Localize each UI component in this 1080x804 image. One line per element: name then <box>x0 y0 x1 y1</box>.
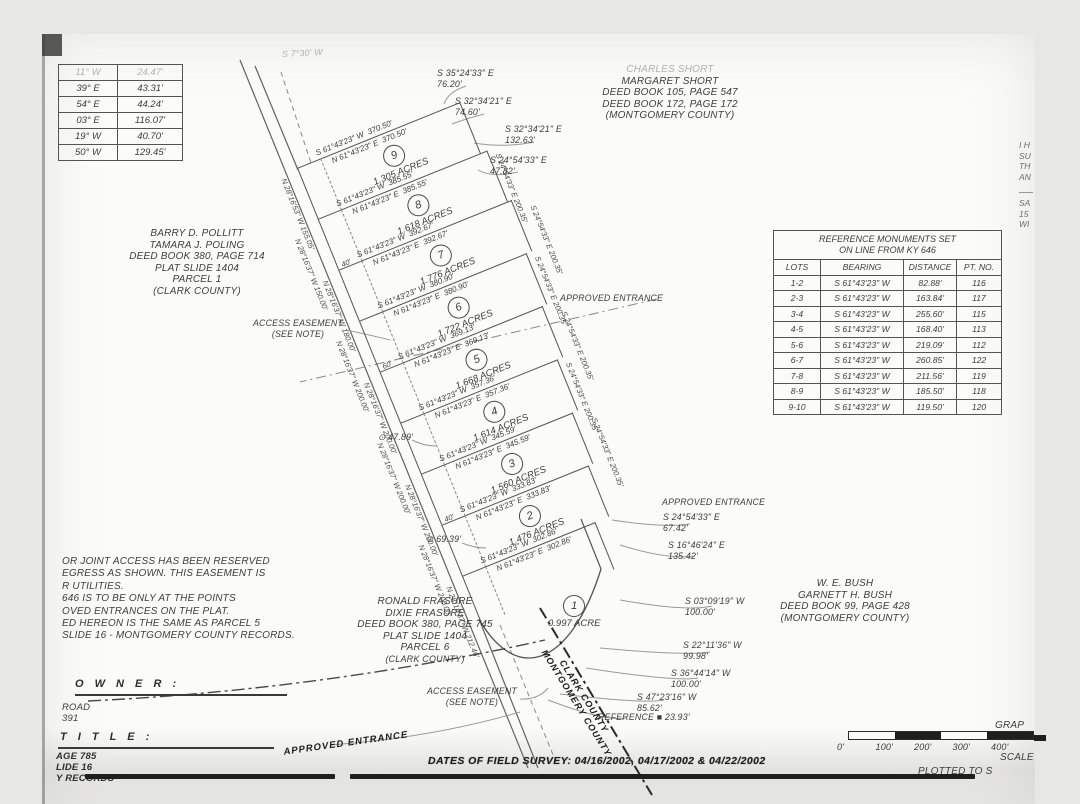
bearing-callout: S 32°34'21" E 74.60' <box>455 96 512 118</box>
title-bar-line <box>350 774 975 779</box>
table-cell: 8-9 <box>774 384 821 400</box>
lot-acreage: 0.997 ACRE <box>548 618 600 629</box>
table-title: REFERENCE MONUMENTS SETON LINE FROM KY 6… <box>774 231 1002 260</box>
table-cell: 255.60' <box>904 306 957 322</box>
table-cell: 03° E <box>59 113 118 129</box>
table-cell: 54° E <box>59 97 118 113</box>
note-line: R UTILITIES. <box>62 581 295 593</box>
bearing-callout: S 03°09'19" W 100.00' <box>685 596 744 618</box>
table-row: 39° E43.31' <box>59 81 183 97</box>
table-cell: 24.47' <box>118 65 183 81</box>
deed-reference: DEED BOOK 380, PAGE 714 <box>107 251 287 263</box>
table-cell: 185.50' <box>904 384 957 400</box>
scale-segment <box>987 732 1033 739</box>
owner-name: TAMARA J. POLING <box>107 240 287 252</box>
table-title-line: REFERENCE MONUMENTS SET <box>819 234 956 244</box>
title-bar-line <box>85 774 335 779</box>
column-header: PT. NO. <box>957 260 1002 276</box>
bearing-callout: S 32°34'21" E 132.63' <box>505 124 562 146</box>
owner-name: DIXIE FRASURE <box>335 608 515 620</box>
table-cell: 9-10 <box>774 399 821 415</box>
table-cell: 6-7 <box>774 353 821 369</box>
bearing-callout: S 35°24'33" E 76.20' <box>437 68 494 90</box>
county-note: (MONTGOMERY COUNTY) <box>755 613 935 625</box>
owner-heading: O W N E R : <box>75 678 180 690</box>
lot-number: 1 <box>563 595 585 617</box>
note-line: ED HEREON IS THE SAME AS PARCEL 5 <box>62 618 295 630</box>
table-cell: S 61°43'23" W <box>821 306 904 322</box>
table-cell: 116.07' <box>118 113 183 129</box>
graphic-scale-title: GRAP <box>995 720 1024 731</box>
table-row: 03° E116.07' <box>59 113 183 129</box>
note-line: EGRESS AS SHOWN. THIS EASEMENT IS <box>62 568 295 580</box>
table-cell: 219.09' <box>904 337 957 353</box>
owner-name: W. E. BUSH <box>755 578 935 590</box>
scanned-plat-page: { "corner_table": { "rows": [ ["11° W","… <box>0 0 1080 804</box>
table-cell: S 61°43'23" W <box>821 291 904 307</box>
field-survey-dates: DATES OF FIELD SURVEY: 04/16/2002, 04/17… <box>428 755 766 767</box>
approved-entrance-label: APPROVED ENTRANCE <box>662 497 765 508</box>
table-row: 11° W24.47' <box>59 65 183 81</box>
easement-notes: OR JOINT ACCESS HAS BEEN RESERVED EGRESS… <box>62 556 295 643</box>
title-underline <box>58 747 274 749</box>
table-cell: 4-5 <box>774 322 821 338</box>
approved-entrance-label: APPROVED ENTRANCE <box>560 293 663 304</box>
owner-name: MARGARET SHORT <box>560 76 780 88</box>
table-cell: 118 <box>957 384 1002 400</box>
access-easement-note: ACCESS EASEMENT (SEE NOTE) <box>424 686 520 708</box>
table-cell: 1-2 <box>774 275 821 291</box>
scale-tick: 400' <box>991 742 1038 752</box>
adjoiner-pollitt: BARRY D. POLLITT TAMARA J. POLING DEED B… <box>107 228 287 298</box>
reference-line: AGE 785 <box>56 751 114 762</box>
access-easement-note: ACCESS EASEMENT (SEE NOTE) <box>250 318 346 340</box>
adjoiner-frasure: RONALD FRASURE DIXIE FRASURE DEED BOOK 3… <box>335 596 515 666</box>
bearing-callout: S 47°23'16" W 85.62' <box>637 692 696 714</box>
table-cell: S 61°43'23" W <box>821 353 904 369</box>
monument-symbol-distance: ⊙ 69.39' <box>426 534 461 545</box>
table-cell: 260.85' <box>904 353 957 369</box>
reference-line: LIDE 16 <box>56 762 114 773</box>
reference-monuments-table: REFERENCE MONUMENTS SETON LINE FROM KY 6… <box>773 230 1002 415</box>
corner-bearing-table: 11° W24.47' 39° E43.31' 54° E44.24' 03° … <box>58 64 183 161</box>
table-cell: 7-8 <box>774 368 821 384</box>
table-cell: 39° E <box>59 81 118 97</box>
monument-symbol-distance: ⊙ 47.89' <box>378 432 413 443</box>
table-cell: 117 <box>957 291 1002 307</box>
reference-monument-note: REFERENCE ■ 23.93' <box>598 712 690 723</box>
table-title-line: ON LINE FROM KY 646 <box>839 245 936 255</box>
table-row: 7-8S 61°43'23" W211.56'119 <box>774 368 1002 384</box>
owner-name: CHARLES SHORT <box>560 64 780 76</box>
bearing-callout: S 22°11'36" W 99.98' <box>683 640 742 662</box>
table-cell: S 61°43'23" W <box>821 368 904 384</box>
table-cell: 119.50' <box>904 399 957 415</box>
scale-bar <box>848 731 1034 740</box>
column-header: LOTS <box>774 260 821 276</box>
note-line: OVED ENTRANCES ON THE PLAT. <box>62 606 295 618</box>
table-cell: 2-3 <box>774 291 821 307</box>
table-cell: 5-6 <box>774 337 821 353</box>
clipped-text-fragment: SA 15 WI <box>1019 198 1030 230</box>
bearing-callout: S 24°54'33" E 67.42' <box>663 512 720 534</box>
adjoiner-short: CHARLES SHORT MARGARET SHORT DEED BOOK 1… <box>560 64 780 122</box>
title-references: AGE 785 LIDE 16 Y RECORDS <box>56 751 114 784</box>
table-cell: 3-4 <box>774 306 821 322</box>
column-header: BEARING <box>821 260 904 276</box>
table-header-row: LOTS BEARING DISTANCE PT. NO. <box>774 260 1002 276</box>
table-cell: 211.56' <box>904 368 957 384</box>
scale-tick-labels: 0' 100' 200' 300' 400' <box>845 742 1038 752</box>
scale-word: SCALE <box>1000 752 1034 763</box>
table-cell: 168.40' <box>904 322 957 338</box>
parcel-reference: PARCEL 6 <box>335 642 515 654</box>
table-cell: 115 <box>957 306 1002 322</box>
deed-reference: DEED BOOK 105, PAGE 547 <box>560 87 780 99</box>
county-note: (MONTGOMERY COUNTY) <box>560 110 780 122</box>
table-cell: 44.24' <box>118 97 183 113</box>
table-row: 19° W40.70' <box>59 129 183 145</box>
table-cell: 113 <box>957 322 1002 338</box>
table-row: 6-7S 61°43'23" W260.85'122 <box>774 353 1002 369</box>
deed-reference: DEED BOOK 172, PAGE 172 <box>560 99 780 111</box>
scale-segment <box>895 732 941 739</box>
table-row: 54° E44.24' <box>59 97 183 113</box>
column-header: DISTANCE <box>904 260 957 276</box>
adjoiner-bush: W. E. BUSH GARNETT H. BUSH DEED BOOK 99,… <box>755 578 935 624</box>
table-row: 2-3S 61°43'23" W163.84'117 <box>774 291 1002 307</box>
note-line: SLIDE 16 - MONTGOMERY COUNTY RECORDS. <box>62 630 295 642</box>
table-cell: 129.45' <box>118 145 183 161</box>
table-row: 50° W129.45' <box>59 145 183 161</box>
table-row: 8-9S 61°43'23" W185.50'118 <box>774 384 1002 400</box>
bearing-callout: S 24°54'33" E 47.82' <box>490 155 547 177</box>
plat-reference: PLAT SLIDE 1404 <box>107 263 287 275</box>
table-row: REFERENCE MONUMENTS SETON LINE FROM KY 6… <box>774 231 1002 260</box>
table-row: 1-2S 61°43'23" W82.88'116 <box>774 275 1002 291</box>
table-cell: 50° W <box>59 145 118 161</box>
county-note: (CLARK COUNTY) <box>335 654 515 666</box>
address-line: ROAD <box>62 702 90 713</box>
plat-reference: PLAT SLIDE 1404 <box>335 631 515 643</box>
table-cell: S 61°43'23" W <box>821 322 904 338</box>
table-row: 4-5S 61°43'23" W168.40'113 <box>774 322 1002 338</box>
owner-address: ROAD 391 <box>62 702 90 724</box>
table-cell: 40.70' <box>118 129 183 145</box>
table-cell: 120 <box>957 399 1002 415</box>
table-cell: 19° W <box>59 129 118 145</box>
table-cell: 119 <box>957 368 1002 384</box>
scale-segment <box>849 732 895 739</box>
table-cell: 116 <box>957 275 1002 291</box>
scale-bar-tail <box>1034 735 1046 741</box>
fragment-divider <box>1019 192 1033 193</box>
scale-segment <box>941 732 987 739</box>
deed-reference: DEED BOOK 380, PAGE 745 <box>335 619 515 631</box>
owner-name: GARNETT H. BUSH <box>755 590 935 602</box>
bearing-callout: S 36°44'14" W 100.00' <box>671 668 730 690</box>
bearing-callout: S 16°46'24" E 135.42' <box>668 540 725 562</box>
owner-name: RONALD FRASURE <box>335 596 515 608</box>
deed-reference: DEED BOOK 99, PAGE 428 <box>755 601 935 613</box>
owner-name: BARRY D. POLLITT <box>107 228 287 240</box>
table-cell: S 61°43'23" W <box>821 337 904 353</box>
table-cell: 82.88' <box>904 275 957 291</box>
table-cell: 163.84' <box>904 291 957 307</box>
owner-underline <box>75 694 287 696</box>
note-line: 646 IS TO BE ONLY AT THE POINTS <box>62 593 295 605</box>
table-row: 3-4S 61°43'23" W255.60'115 <box>774 306 1002 322</box>
county-note: (CLARK COUNTY) <box>107 286 287 298</box>
faint-top-bearing: S 7°30' W <box>282 47 323 60</box>
table-cell: S 61°43'23" W <box>821 384 904 400</box>
table-cell: 122 <box>957 353 1002 369</box>
table-cell: 11° W <box>59 65 118 81</box>
table-cell: S 61°43'23" W <box>821 399 904 415</box>
table-row: 5-6S 61°43'23" W219.09'112 <box>774 337 1002 353</box>
table-cell: S 61°43'23" W <box>821 275 904 291</box>
clipped-text-fragment: I H SU TH AN <box>1019 140 1031 182</box>
table-row: 9-10S 61°43'23" W119.50'120 <box>774 399 1002 415</box>
title-heading: T I T L E : <box>60 731 153 743</box>
table-cell: 43.31' <box>118 81 183 97</box>
table-cell: 112 <box>957 337 1002 353</box>
note-line: OR JOINT ACCESS HAS BEEN RESERVED <box>62 556 295 568</box>
lot-1-label: 1 0.997 ACRE <box>548 595 600 629</box>
parcel-reference: PARCEL 1 <box>107 274 287 286</box>
address-line: 391 <box>62 713 90 724</box>
